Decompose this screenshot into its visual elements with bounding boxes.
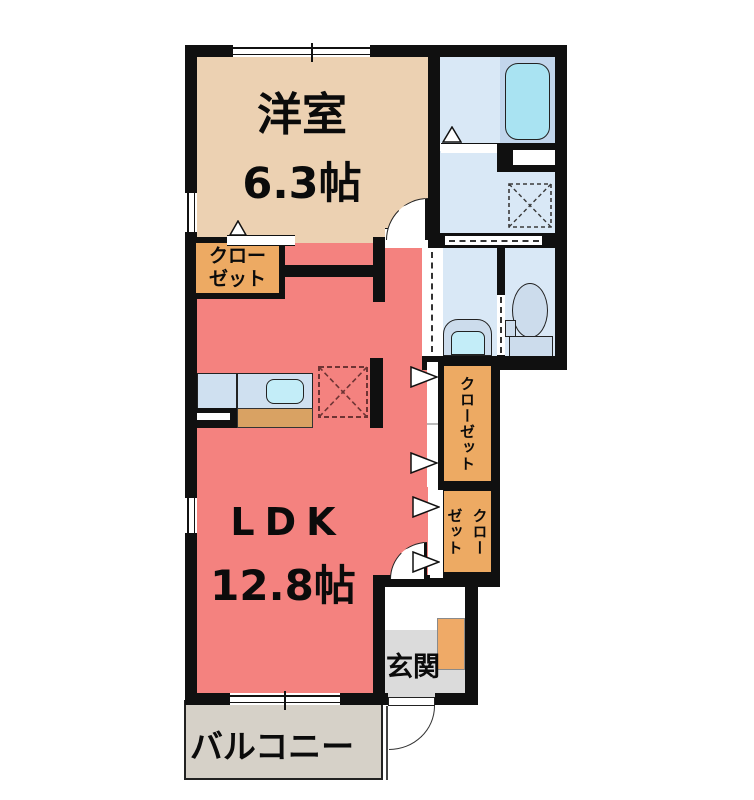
wall-outer-right: [555, 45, 567, 370]
bathtub: [505, 63, 550, 140]
wall-fridge-stub: [370, 358, 383, 428]
closet-upper-left: クロー ゼット: [190, 237, 285, 299]
kitchen-side-wall-slit: [195, 413, 230, 420]
closet-upper-left-label-line1: クロー: [209, 245, 266, 268]
western-room-label: 洋室: [202, 78, 402, 143]
ldk-label-block: LDK 12.8帖: [188, 500, 378, 613]
entrance-label: 玄関: [383, 645, 443, 684]
toilet-door-dash: [500, 297, 502, 353]
window-top-tick: [311, 43, 313, 62]
western-room-area: 6.3帖: [202, 149, 402, 211]
kitchen-counter-divider: [236, 373, 238, 410]
wall-western-bottom: [282, 265, 373, 277]
wall-top-right: [428, 45, 567, 57]
western-room-label-block: 洋室 6.3帖: [202, 78, 402, 211]
front-door-arc: [389, 706, 435, 750]
ldk-label: LDK: [188, 500, 378, 544]
bathroom-door-swing-icon: [442, 126, 462, 143]
wall-western-right: [428, 45, 440, 247]
porch-edge-line: [386, 706, 388, 780]
floor-plan: クロー ゼット クローゼット ゼット クロー 洋室 6.3帖 LDK 12.8帖…: [0, 0, 754, 800]
kitchen-counter-front: [237, 408, 313, 428]
wall-niche: [513, 150, 555, 165]
room-ldk-left: [197, 243, 373, 695]
closet-left-door-swing-icon: [229, 220, 247, 236]
wall-entrance-right: [465, 582, 478, 705]
ldk-area: 12.8帖: [188, 552, 378, 613]
window-western-left: [185, 193, 197, 232]
closet-tall-door-swing-icon-top: [410, 366, 438, 388]
closet-left-door: [227, 235, 295, 246]
washbasin-bowl: [451, 331, 485, 355]
closet-hall-lower: ゼット クロー: [438, 485, 497, 578]
closet-lower-door-swing-icon-bottom: [412, 551, 440, 573]
closet-lower-door-swing-icon-top: [412, 496, 440, 518]
closet-upper-left-label-line2: ゼット: [209, 268, 266, 291]
closet-hall-lower-right-column: クロー: [470, 508, 491, 556]
washing-machine-pan: [508, 183, 552, 228]
closet-hall-tall: クローゼット: [438, 360, 497, 487]
closet-hall-lower-left-column: ゼット: [445, 508, 466, 556]
kitchen-sink: [266, 379, 304, 404]
balcony-door-tick: [284, 691, 286, 710]
balcony-label: バルコニー: [187, 720, 357, 768]
toilet-bowl: [512, 283, 548, 338]
refrigerator-space: [318, 366, 368, 418]
front-door-leaf: [388, 697, 435, 706]
toilet-tank: [509, 336, 553, 357]
closet-tall-door-swing-icon-bottom: [410, 452, 438, 474]
bathroom-door-opening: [441, 143, 497, 153]
window-western-top: [233, 45, 370, 57]
wall-western-door-stub: [373, 237, 385, 302]
closet-tall-door-split: [427, 423, 438, 425]
washbasin-sliding-door-dash: [431, 252, 433, 352]
washroom-sliding-door-dash: [449, 240, 539, 242]
closet-hall-tall-label: クローゼット: [457, 376, 478, 472]
toilet-flush-handle: [505, 320, 516, 337]
